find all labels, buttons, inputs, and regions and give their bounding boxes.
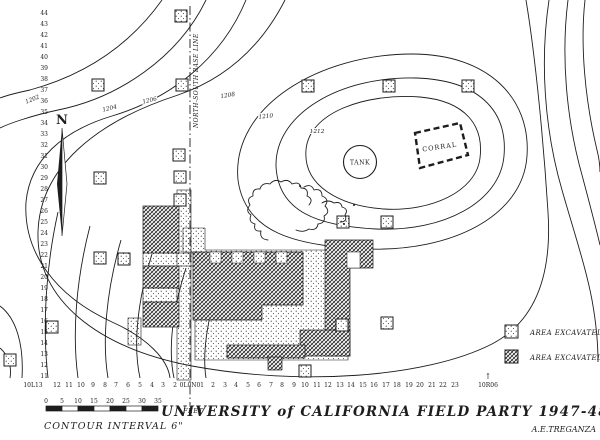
left-grid-number: 25 xyxy=(40,219,48,226)
test-pit-square xyxy=(4,354,16,366)
bottom-grid-number: 12 xyxy=(53,382,61,389)
test-pit-square xyxy=(118,253,130,265)
bottom-grid-number: 9 xyxy=(91,382,95,389)
scale-bar-segment xyxy=(110,406,126,411)
notch-white xyxy=(347,252,360,268)
legend-label-1947: AREA EXCAVATED - 1947 xyxy=(529,329,600,337)
contour-line xyxy=(0,306,22,378)
left-grid-numbers: 4443424140393837363534333231302928272625… xyxy=(40,10,48,380)
scale-bar-segment xyxy=(62,406,78,411)
bottom-grid-number: 23 xyxy=(451,382,459,389)
left-grid-number: 14 xyxy=(40,340,48,347)
left-grid-number: 18 xyxy=(40,296,48,303)
left-grid-number: 30 xyxy=(40,164,48,171)
excavation-area-1948 xyxy=(268,357,282,370)
test-pit-square xyxy=(174,171,186,183)
bottom-grid-number: 1 xyxy=(200,382,204,389)
test-pit-square xyxy=(381,317,393,329)
site-map: TANK CORRAL NORTH-SOUTH BASE LINE N 1202… xyxy=(0,0,600,440)
bottom-grid-number: 16 xyxy=(370,382,378,389)
left-grid-number: 22 xyxy=(40,252,48,259)
contour-elevation-label: 1210 xyxy=(258,113,274,121)
bottom-grid-number: 10 xyxy=(77,382,85,389)
north-needle-light xyxy=(62,128,67,236)
scale-bar-tick: 0 xyxy=(44,398,48,405)
legend-label-1948: AREA EXCAVATED - 1948 xyxy=(529,354,600,362)
contour-interval-note: CONTOUR INTERVAL 6" xyxy=(44,421,184,432)
bottom-grid-number: 7 xyxy=(269,382,273,389)
bottom-grid-number: 13 xyxy=(336,382,344,389)
datum-arrow-icon: ↑ xyxy=(485,372,492,381)
test-pit-square xyxy=(336,319,348,331)
bottom-grid-number: 3 xyxy=(161,382,165,389)
test-pit-square xyxy=(383,80,395,92)
contour-line xyxy=(0,0,162,98)
contour-line xyxy=(276,78,504,229)
left-grid-number: 31 xyxy=(40,153,48,160)
left-grid-number: 27 xyxy=(40,197,48,204)
corral-label: CORRAL xyxy=(422,141,458,154)
excavation-area-1948 xyxy=(143,266,179,288)
bottom-grid-number: 17 xyxy=(382,382,390,389)
left-grid-number: 33 xyxy=(40,131,48,138)
bottom-grid-number: 10L13 xyxy=(23,382,42,389)
left-grid-number: 37 xyxy=(40,87,48,94)
scrub-dot xyxy=(353,204,355,206)
left-grid-number: 42 xyxy=(40,32,48,39)
test-pit-square xyxy=(176,79,188,91)
left-grid-number: 13 xyxy=(40,351,48,358)
bottom-grid-number: 9 xyxy=(292,382,296,389)
legend-swatch-1947 xyxy=(505,325,518,338)
contour-line xyxy=(565,0,600,245)
left-grid-number: 41 xyxy=(40,43,48,50)
left-grid-number: 34 xyxy=(40,120,48,127)
left-grid-number: 28 xyxy=(40,186,48,193)
scale-bar-segment xyxy=(142,406,158,411)
bottom-grid-number: 22 xyxy=(439,382,447,389)
bottom-grid-number: 14 xyxy=(347,382,355,389)
contour-elevation-label: 1208 xyxy=(220,92,236,101)
scale-bar-tick: 10 xyxy=(74,398,82,405)
test-pit-square xyxy=(174,194,186,206)
left-grid-number: 12 xyxy=(40,362,48,369)
left-grid-number: 44 xyxy=(40,10,48,17)
bottom-grid-number: 2 xyxy=(173,382,177,389)
tank: TANK xyxy=(344,146,377,179)
left-grid-number: 40 xyxy=(40,54,48,61)
bottom-grid-number: 10 xyxy=(301,382,309,389)
bottom-grid-number: 5 xyxy=(246,382,250,389)
left-grid-number: 26 xyxy=(40,208,48,215)
left-grid-number: 29 xyxy=(40,175,48,182)
test-pit-square xyxy=(175,10,187,22)
bottom-grid-number: 8 xyxy=(103,382,107,389)
left-grid-number: 32 xyxy=(40,142,48,149)
bottom-grid-number: 2 xyxy=(211,382,215,389)
bottom-grid-number: 15 xyxy=(359,382,367,389)
map-canvas: TANK CORRAL NORTH-SOUTH BASE LINE N 1202… xyxy=(0,0,600,440)
scale-bar-tick: 30 xyxy=(138,398,146,405)
north-label: N xyxy=(56,113,68,128)
contour-elevation-label: 1212 xyxy=(310,129,325,135)
baseline-label: NORTH-SOUTH BASE LINE xyxy=(193,33,200,129)
excavation-area-1948 xyxy=(227,345,305,358)
bottom-grid-number: 4 xyxy=(150,382,154,389)
contour-elevation-label: 1204 xyxy=(102,104,118,113)
bottom-grid-number: 11 xyxy=(65,382,73,389)
scale-bar-tick: 25 xyxy=(122,398,130,405)
map-title: UNIVERSITY of CALIFORNIA FIELD PARTY 194… xyxy=(161,404,600,420)
left-grid-number: 43 xyxy=(40,21,48,28)
bottom-grid-number: 6 xyxy=(126,382,130,389)
scale-bar-tick: 15 xyxy=(90,398,98,405)
bottom-grid-number: 7 xyxy=(114,382,118,389)
corral: CORRAL xyxy=(415,123,468,168)
test-pit-square xyxy=(462,80,474,92)
bottom-grid-number: 3 xyxy=(223,382,227,389)
bottom-grid-number: 8 xyxy=(280,382,284,389)
bottom-grid-number: 11 xyxy=(313,382,321,389)
scrub-outline xyxy=(296,186,328,232)
contour-line xyxy=(544,0,598,362)
bottom-grid-number: 5 xyxy=(138,382,142,389)
scrub-vegetation-icon xyxy=(248,180,355,240)
bottom-grid-number: 0L0N0 xyxy=(180,382,201,389)
contour-elevation-labels: 120212041206120812101212 xyxy=(25,92,325,135)
test-pit-square xyxy=(299,365,311,377)
legend: AREA EXCAVATED - 1947 AREA EXCAVATED - 1… xyxy=(505,325,600,363)
left-grid-number: 35 xyxy=(40,109,48,116)
notch-1947 xyxy=(276,252,287,263)
scale-bar-tick: 20 xyxy=(106,398,114,405)
north-arrow-icon: N xyxy=(56,113,68,236)
excavation-area-1948 xyxy=(143,302,179,327)
bottom-grid-number: 19 xyxy=(405,382,413,389)
left-grid-number: 19 xyxy=(40,285,48,292)
scale-bar-segment xyxy=(78,406,94,411)
bottom-grid-numbers: 10L13121110987654320L0N01234567891011121… xyxy=(23,382,498,389)
test-pit-square xyxy=(94,172,106,184)
north-needle-dark xyxy=(57,128,62,236)
bottom-grid-number: 10R06 xyxy=(478,382,498,389)
test-pit-square xyxy=(173,149,185,161)
left-grid-number: 15 xyxy=(40,329,48,336)
test-pit-square xyxy=(92,79,104,91)
tank-label: TANK xyxy=(350,160,370,167)
scale-bar-segment xyxy=(94,406,110,411)
scale-bar-tick: 5 xyxy=(60,398,64,405)
left-grid-number: 39 xyxy=(40,65,48,72)
excavation-area-1947 xyxy=(143,288,179,302)
bottom-grid-number: 21 xyxy=(428,382,436,389)
left-grid-number: 20 xyxy=(40,274,48,281)
bottom-grid-number: 4 xyxy=(234,382,238,389)
scale-bar-segment xyxy=(46,406,62,411)
scale-bar-segment xyxy=(126,406,142,411)
author-signature: A.E.TREGANZA xyxy=(531,425,597,434)
excavation-area-1948 xyxy=(143,206,179,253)
scrub-dot xyxy=(299,185,301,187)
bottom-grid-number: 6 xyxy=(257,382,261,389)
bottom-grid-number: 18 xyxy=(393,382,401,389)
left-grid-number: 16 xyxy=(40,318,48,325)
legend-swatch-1948 xyxy=(505,350,518,363)
contour-elevation-label: 1206 xyxy=(142,96,158,105)
test-pit-square xyxy=(302,80,314,92)
left-grid-number: 11 xyxy=(40,373,48,380)
contour-line xyxy=(583,0,600,172)
excavation-area-1947 xyxy=(128,318,141,345)
notch-1947 xyxy=(254,252,265,263)
test-pit-square xyxy=(381,216,393,228)
left-grid-number: 38 xyxy=(40,76,48,83)
left-grid-number: 24 xyxy=(40,230,48,237)
bottom-grid-number: 20 xyxy=(416,382,424,389)
contour-line xyxy=(306,96,481,209)
notch-1947 xyxy=(232,252,243,263)
bottom-grid-number: 12 xyxy=(324,382,332,389)
test-pit-square xyxy=(94,252,106,264)
notch-1947 xyxy=(210,252,221,263)
left-grid-number: 36 xyxy=(40,98,48,105)
contour-elevation-label: 1202 xyxy=(25,94,41,105)
left-grid-number: 21 xyxy=(40,263,48,270)
left-grid-number: 23 xyxy=(40,241,48,248)
excavation-area-1948 xyxy=(300,330,350,356)
scrub-dot xyxy=(343,223,345,225)
left-grid-number: 17 xyxy=(40,307,48,314)
